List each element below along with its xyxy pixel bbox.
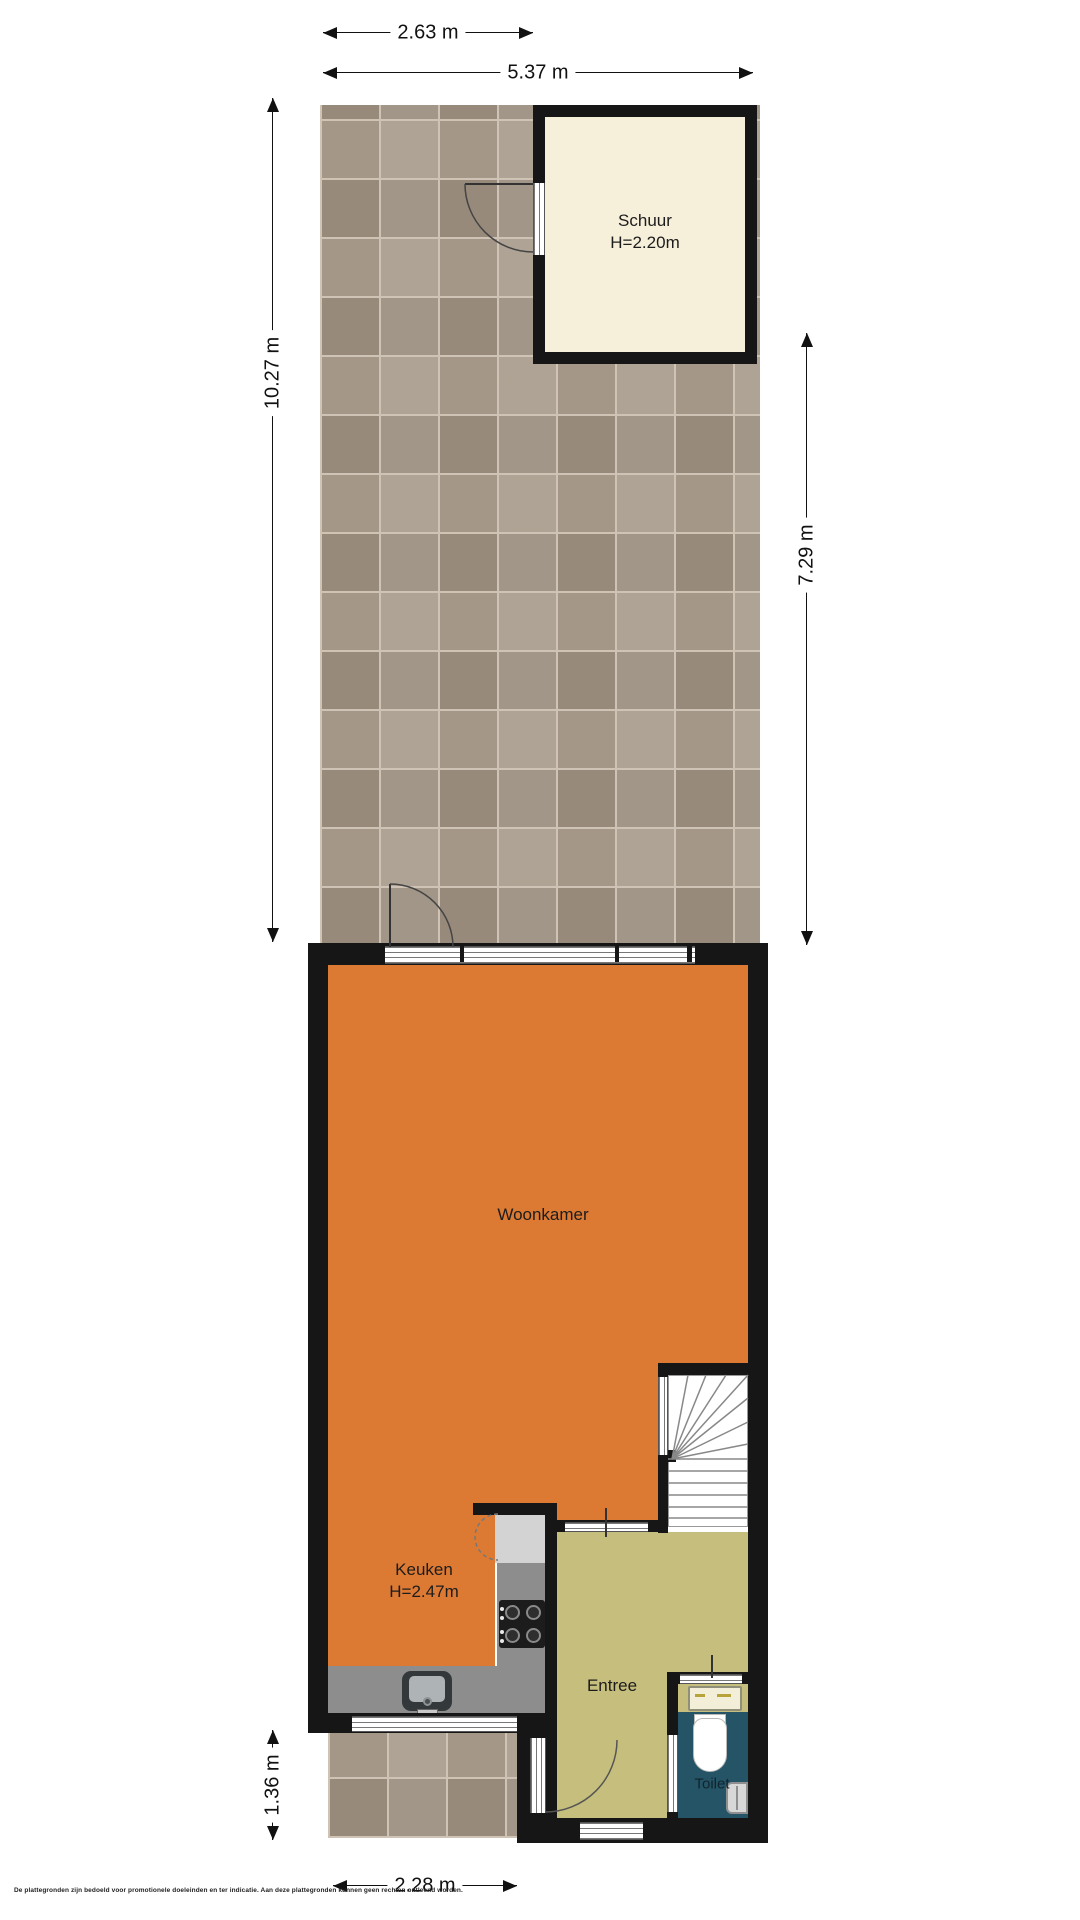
dim-arrowhead (267, 98, 279, 112)
dimension-line-right (806, 333, 807, 945)
dimension-label-left: 10.27 m (261, 330, 286, 416)
dim-arrowhead (267, 1730, 279, 1744)
plan-linework (0, 0, 1080, 1920)
dimension-label-top-outer: 5.37 m (500, 61, 575, 86)
dim-arrowhead (519, 27, 533, 39)
room-label-woonkamer: Woonkamer (497, 1204, 588, 1226)
floorplan-canvas: Schuur H=2.20m (0, 0, 1080, 1920)
dimension-label-top-inner: 2.63 m (390, 21, 465, 46)
toilet-name: Toilet (694, 1775, 729, 1792)
dimension-label-bottom-left: 1.36 m (261, 1747, 286, 1822)
dimension-line-left (272, 98, 273, 942)
dim-arrowhead (739, 67, 753, 79)
room-label-toilet: Toilet (694, 1774, 729, 1794)
dimension-label-bottom: 2.28 m (387, 1874, 462, 1899)
entree-name: Entree (587, 1676, 637, 1695)
dimension-label-right: 7.29 m (795, 517, 820, 592)
dim-arrowhead (323, 27, 337, 39)
dim-arrowhead (801, 931, 813, 945)
dim-arrowhead (267, 928, 279, 942)
disclaimer-text: De plattegronden zijn bedoeld voor promo… (14, 1887, 463, 1894)
dim-arrowhead (267, 1826, 279, 1840)
keuken-height: H=2.47m (389, 1582, 458, 1601)
dim-arrowhead (503, 1880, 517, 1892)
dim-arrowhead (801, 333, 813, 347)
keuken-name: Keuken (395, 1560, 453, 1579)
room-label-entree: Entree (587, 1675, 637, 1697)
dim-arrowhead (323, 67, 337, 79)
woonkamer-name: Woonkamer (497, 1205, 588, 1224)
room-label-keuken: Keuken H=2.47m (389, 1559, 458, 1603)
